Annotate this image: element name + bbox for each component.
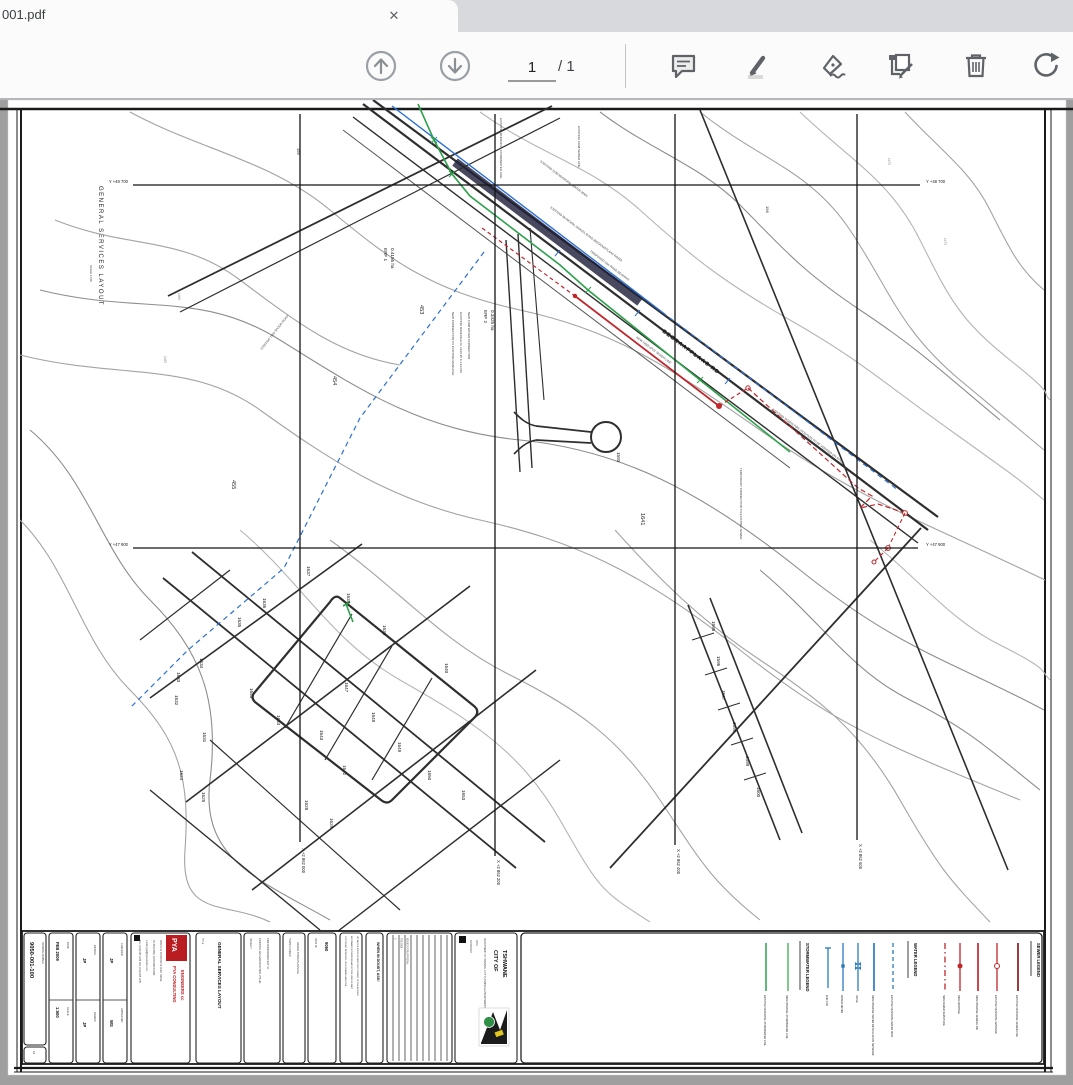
- contour-label: 1475: [943, 238, 947, 245]
- erf-number: 1629: [329, 818, 334, 829]
- city-name: CITY OF: [492, 950, 498, 972]
- design-value: JP: [82, 958, 87, 963]
- legend-item-label: WATER METER: [840, 995, 843, 1013]
- drawn-value: JP: [82, 1022, 87, 1027]
- grid-label: Y +48 700: [109, 179, 129, 184]
- signature-button[interactable]: [815, 46, 855, 86]
- signature-pen-icon: [817, 49, 851, 83]
- rotate-icon: [1028, 49, 1062, 83]
- revision-date: FEB 2009: [400, 938, 402, 949]
- checked-label: CHECKED: [120, 943, 124, 956]
- grid-label: X +2 862 600: [858, 844, 863, 870]
- disclaimer-line: OR WHOLE WITHOUT WRITTEN CONSENT OF THE …: [356, 936, 359, 996]
- erf-number: 453: [418, 305, 424, 314]
- tab-title: 001.pdf: [2, 7, 45, 22]
- legend-item-label: VALVE: [855, 995, 858, 1003]
- contour-label: 199: [296, 148, 301, 155]
- pdf-page-canvas[interactable]: GENERAL SERVICES LAYOUT SCALE 1:500: [0, 100, 1073, 1080]
- erf-number: 1639: [382, 625, 387, 636]
- erf-number: 1628: [304, 800, 309, 811]
- contour-label: 1465: [163, 356, 167, 363]
- erf-number: 1635: [237, 617, 242, 628]
- date-value: FEB 2009: [55, 942, 60, 962]
- erf-number: 1653: [461, 790, 466, 801]
- comment-button[interactable]: [665, 46, 705, 86]
- erf-number: 1624: [179, 770, 184, 781]
- pya-logo-text: PYA: [170, 938, 177, 952]
- page-down-button[interactable]: [435, 46, 475, 86]
- erf-number: 1597: [721, 690, 726, 701]
- annotation: EXISTING MANHOLE CL 1436.25 IL 1434.80: [459, 312, 463, 373]
- margin-scale: SCALE 1:500: [89, 265, 93, 282]
- scale-label: SCALE: [66, 1007, 70, 1016]
- comment-icon: [667, 49, 701, 83]
- toolbar-divider: [625, 44, 626, 88]
- erf-number: 1636: [262, 598, 267, 609]
- grid-label: X +2 862 200: [496, 860, 501, 886]
- city-name: TSHWANE: [501, 950, 507, 978]
- erf-number: 1648: [371, 712, 376, 723]
- firm-address: e-mail: pya@pyaconsult.co.za: [145, 940, 148, 971]
- title-block: 9050-001-100 DRAWING NUMBER A3 FEB 2009 …: [22, 931, 1044, 1064]
- erf-number: 1640: [444, 663, 449, 674]
- erf-area: 0.3425 ha: [490, 310, 495, 331]
- erf-number: 1645: [249, 688, 254, 699]
- planner-value: ORIGIN TOWN PLANNING: [296, 942, 300, 974]
- edit-page-icon: [884, 49, 918, 83]
- trash-icon: [959, 49, 993, 83]
- project-line: PRETORIUSPARK EXT 37: [266, 938, 270, 970]
- firm-address: ROUTE 21 CORPORATE PARK, IRENE: [159, 940, 162, 982]
- legend-item-label: EXISTING MUNICIPAL MANHOLE: [994, 995, 997, 1034]
- legend-item-label: EXISTING MUNICIPAL WATER MAIN: [890, 995, 893, 1037]
- highlighter-icon: [742, 49, 776, 83]
- project-label: PROJECT: [249, 938, 251, 949]
- erf-number: 1593: [616, 452, 621, 463]
- erf-area: 0.4156 ha: [390, 248, 395, 269]
- legend-title: SEWER LEGEND: [1036, 943, 1041, 977]
- annotation: EXISTING MUNICIPAL STORMWATER LINE: [499, 118, 503, 178]
- drawing-number: 9050-001-100: [28, 942, 34, 978]
- approved-value: WS: [109, 1020, 114, 1027]
- grid-label: Y +47 900: [109, 542, 129, 547]
- erf-number: 1625: [201, 792, 206, 803]
- ref-value: 9050: [324, 942, 329, 952]
- annotation: TEMPORARY CONNECTION TO EXISTING SEWER: [739, 468, 743, 540]
- drawing-number-label: DRAWING NUMBER: [41, 942, 44, 964]
- date-label: DATE: [66, 942, 70, 949]
- highlight-button[interactable]: [740, 46, 780, 86]
- title-value: GENERAL SERVICES LAYOUT: [217, 942, 222, 1009]
- contour-label: 196: [765, 206, 770, 213]
- erf-number: 1631: [202, 732, 207, 743]
- firm-address: PO BOX 8052, CENTURION 0046: [152, 940, 154, 976]
- pdf-tab[interactable]: 001.pdf ✕: [0, 0, 458, 32]
- delete-button[interactable]: [957, 46, 997, 86]
- erf-number: 1632: [174, 695, 179, 706]
- firm-name: PYA CONSULTING: [172, 966, 177, 1003]
- legend-item-label: NEW INTERNAL STORMWATER LINE: [785, 995, 788, 1039]
- drawn-label: DRAWN: [93, 1012, 97, 1022]
- project-line: PORTION 123 GARSFONTEIN 375-JR: [258, 938, 262, 983]
- page-up-button[interactable]: [361, 46, 401, 86]
- grid-label: X +2 862 400: [676, 849, 681, 875]
- ref-label: PROJ No: [314, 938, 316, 948]
- annotation: NEW 110Ø WATER CONNECTION: [467, 312, 471, 359]
- legend-item-label: NEW INTERNAL WATER RETICULATION NETWORK: [871, 995, 874, 1056]
- erf-label: ERF 1: [383, 248, 388, 261]
- erf-number: 1647: [344, 682, 349, 693]
- doubt-note: WHEN IN DOUBT, ASK!: [376, 942, 380, 982]
- edit-page-button[interactable]: [882, 46, 922, 86]
- margin-title: GENERAL SERVICES LAYOUT: [97, 186, 103, 306]
- approved-label: APPROVED: [120, 1008, 124, 1023]
- erf-number: 1637: [306, 566, 311, 577]
- sheet-size: A3: [32, 1051, 36, 1055]
- disclaimer-line: COPYRIGHT RESERVED. THIS DRAWING AND THE: [344, 936, 347, 987]
- legend-item-label: END CAP: [825, 995, 828, 1006]
- erf-number: 1598: [732, 722, 737, 733]
- tshwane-logo: [479, 1008, 509, 1046]
- erf-number: 1600: [756, 787, 761, 798]
- page-number-input[interactable]: [508, 54, 556, 82]
- city-date-label: DATE:: [475, 940, 478, 947]
- pdf-sheet: [8, 100, 1066, 1075]
- annotation: EXISTING 160Ø SEWER LINE: [577, 126, 581, 168]
- erf-label: ERF 2: [483, 310, 488, 323]
- erf-number: 1649: [397, 742, 402, 753]
- erf-number: 1596: [716, 656, 721, 667]
- erf-number: 1634: [199, 658, 204, 669]
- legend-title: STORMWATER LEGEND: [805, 943, 810, 991]
- legend-item-label: EXISTING MUNICIPAL STORMWATER LINE: [763, 995, 766, 1046]
- grid-label: Y +48 700: [926, 179, 946, 184]
- erf-number: 1633: [176, 672, 181, 683]
- title-label: TITLE: [201, 938, 203, 945]
- page-count-label: / 1: [558, 58, 575, 75]
- legend-item-label: NEW INTERNAL SEWER LINE: [975, 995, 978, 1030]
- erf-number: 1599: [745, 756, 750, 767]
- grid-label: X +2 862 000: [301, 848, 306, 874]
- erf-number: 455: [230, 480, 236, 489]
- checked-value: JP: [109, 958, 114, 963]
- grid-label: Y +47 900: [926, 542, 946, 547]
- legend-item-label: NEW MANHOLE: [957, 995, 960, 1014]
- tab-close-icon[interactable]: ✕: [383, 5, 405, 27]
- revision-desc: ISSUED FOR APPROVAL: [406, 938, 409, 965]
- erf-number: 1595: [711, 621, 716, 632]
- firm-name: ENGINEERS cc: [180, 970, 185, 1001]
- planner-label: TOWN PLANNER: [288, 938, 291, 957]
- legend-title: WATER LEGEND: [913, 943, 918, 976]
- contour-label: 1460: [177, 293, 181, 300]
- erf-number: 1650: [427, 770, 432, 781]
- design-label: DESIGN: [93, 945, 97, 955]
- city-approved-label: APPROVED:: [469, 940, 472, 954]
- erf-number: 454: [331, 376, 337, 385]
- firm-address: TEL: (012) 665 1234 FAX: (012) 665 1235: [138, 940, 141, 984]
- browser-tab-strip: 001.pdf ✕: [0, 0, 1073, 32]
- legend-item-label: EXISTING MUNICIPAL SEWER LINE: [1015, 995, 1018, 1037]
- pdf-toolbar: / 1: [0, 32, 1073, 100]
- disclaimer-line: INFORMATION THEREON MAY NOT BE USED IN P…: [350, 936, 353, 990]
- rotate-button[interactable]: [1026, 46, 1066, 86]
- legend-item-label: NEW SEWER SERVITUDE: [942, 995, 945, 1026]
- erf-number: 1644: [276, 715, 281, 726]
- erf-number: 1643: [319, 730, 324, 741]
- erf-number: 1638: [346, 593, 351, 604]
- scale-value: 1:500: [55, 1007, 60, 1018]
- erf-number: 1642: [342, 765, 347, 776]
- contour-label: 1470: [887, 158, 891, 165]
- erf-number: 1641: [639, 513, 645, 525]
- annotation: NEW CONNECTION TO EXISTING MANHOLE: [451, 312, 455, 375]
